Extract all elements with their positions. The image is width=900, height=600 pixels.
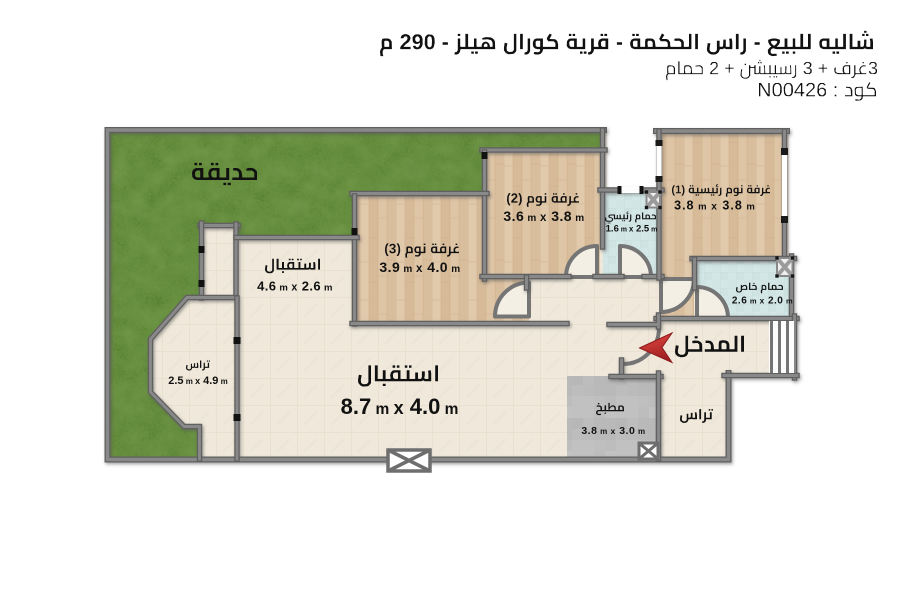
svg-text:2.6 m x 2.0 m: 2.6 m x 2.0 m bbox=[732, 296, 793, 307]
svg-text:2.5 m x 4.9 m: 2.5 m x 4.9 m bbox=[168, 375, 228, 387]
svg-text:3.8 m x 3.0 m: 3.8 m x 3.0 m bbox=[581, 425, 645, 437]
svg-text:3.8 m x 3.8 m: 3.8 m x 3.8 m bbox=[674, 199, 756, 213]
